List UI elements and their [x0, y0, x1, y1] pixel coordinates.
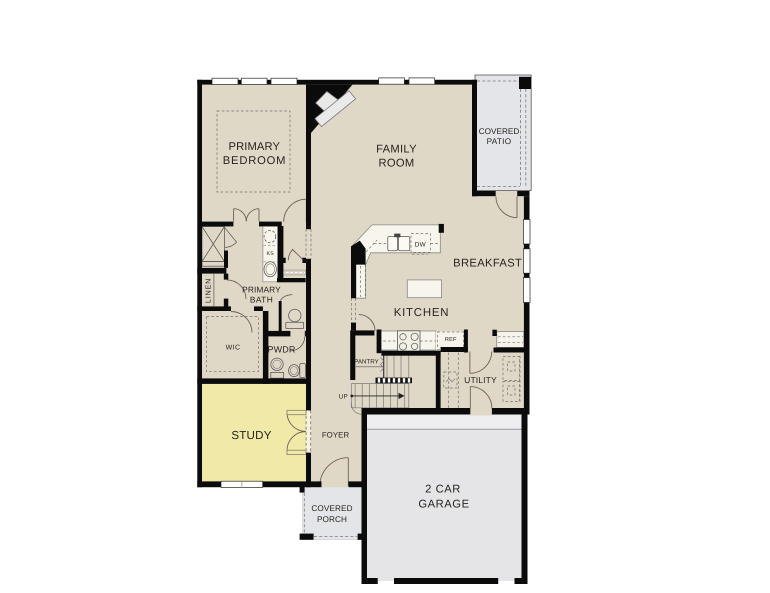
svg-text:KITCHEN: KITCHEN — [394, 307, 450, 319]
svg-text:FOYER: FOYER — [322, 431, 350, 440]
svg-text:ROOM: ROOM — [378, 158, 414, 170]
svg-text:PRIMARY: PRIMARY — [242, 285, 281, 295]
svg-text:WIC: WIC — [226, 345, 241, 352]
svg-text:2 CAR: 2 CAR — [425, 484, 461, 496]
svg-text:PWDR: PWDR — [268, 345, 296, 355]
svg-text:KS: KS — [267, 251, 275, 257]
svg-text:BREAKFAST: BREAKFAST — [453, 258, 522, 270]
svg-text:DW: DW — [415, 242, 427, 249]
svg-text:COVERED: COVERED — [311, 504, 352, 513]
svg-text:REF: REF — [445, 337, 457, 343]
svg-text:PORCH: PORCH — [317, 515, 347, 524]
svg-text:STUDY: STUDY — [231, 429, 271, 442]
svg-text:FAMILY: FAMILY — [376, 144, 417, 156]
svg-text:BATH: BATH — [250, 295, 273, 305]
svg-text:PANTRY: PANTRY — [354, 359, 379, 366]
svg-text:COVERED: COVERED — [479, 127, 520, 136]
svg-text:LINEN: LINEN — [203, 278, 212, 303]
svg-text:PATIO: PATIO — [487, 137, 512, 146]
svg-text:UP: UP — [339, 394, 348, 401]
svg-text:GARAGE: GARAGE — [418, 499, 469, 511]
svg-text:BEDROOM: BEDROOM — [223, 155, 286, 167]
svg-text:PRIMARY: PRIMARY — [229, 141, 281, 153]
svg-text:UTILITY: UTILITY — [464, 375, 497, 385]
